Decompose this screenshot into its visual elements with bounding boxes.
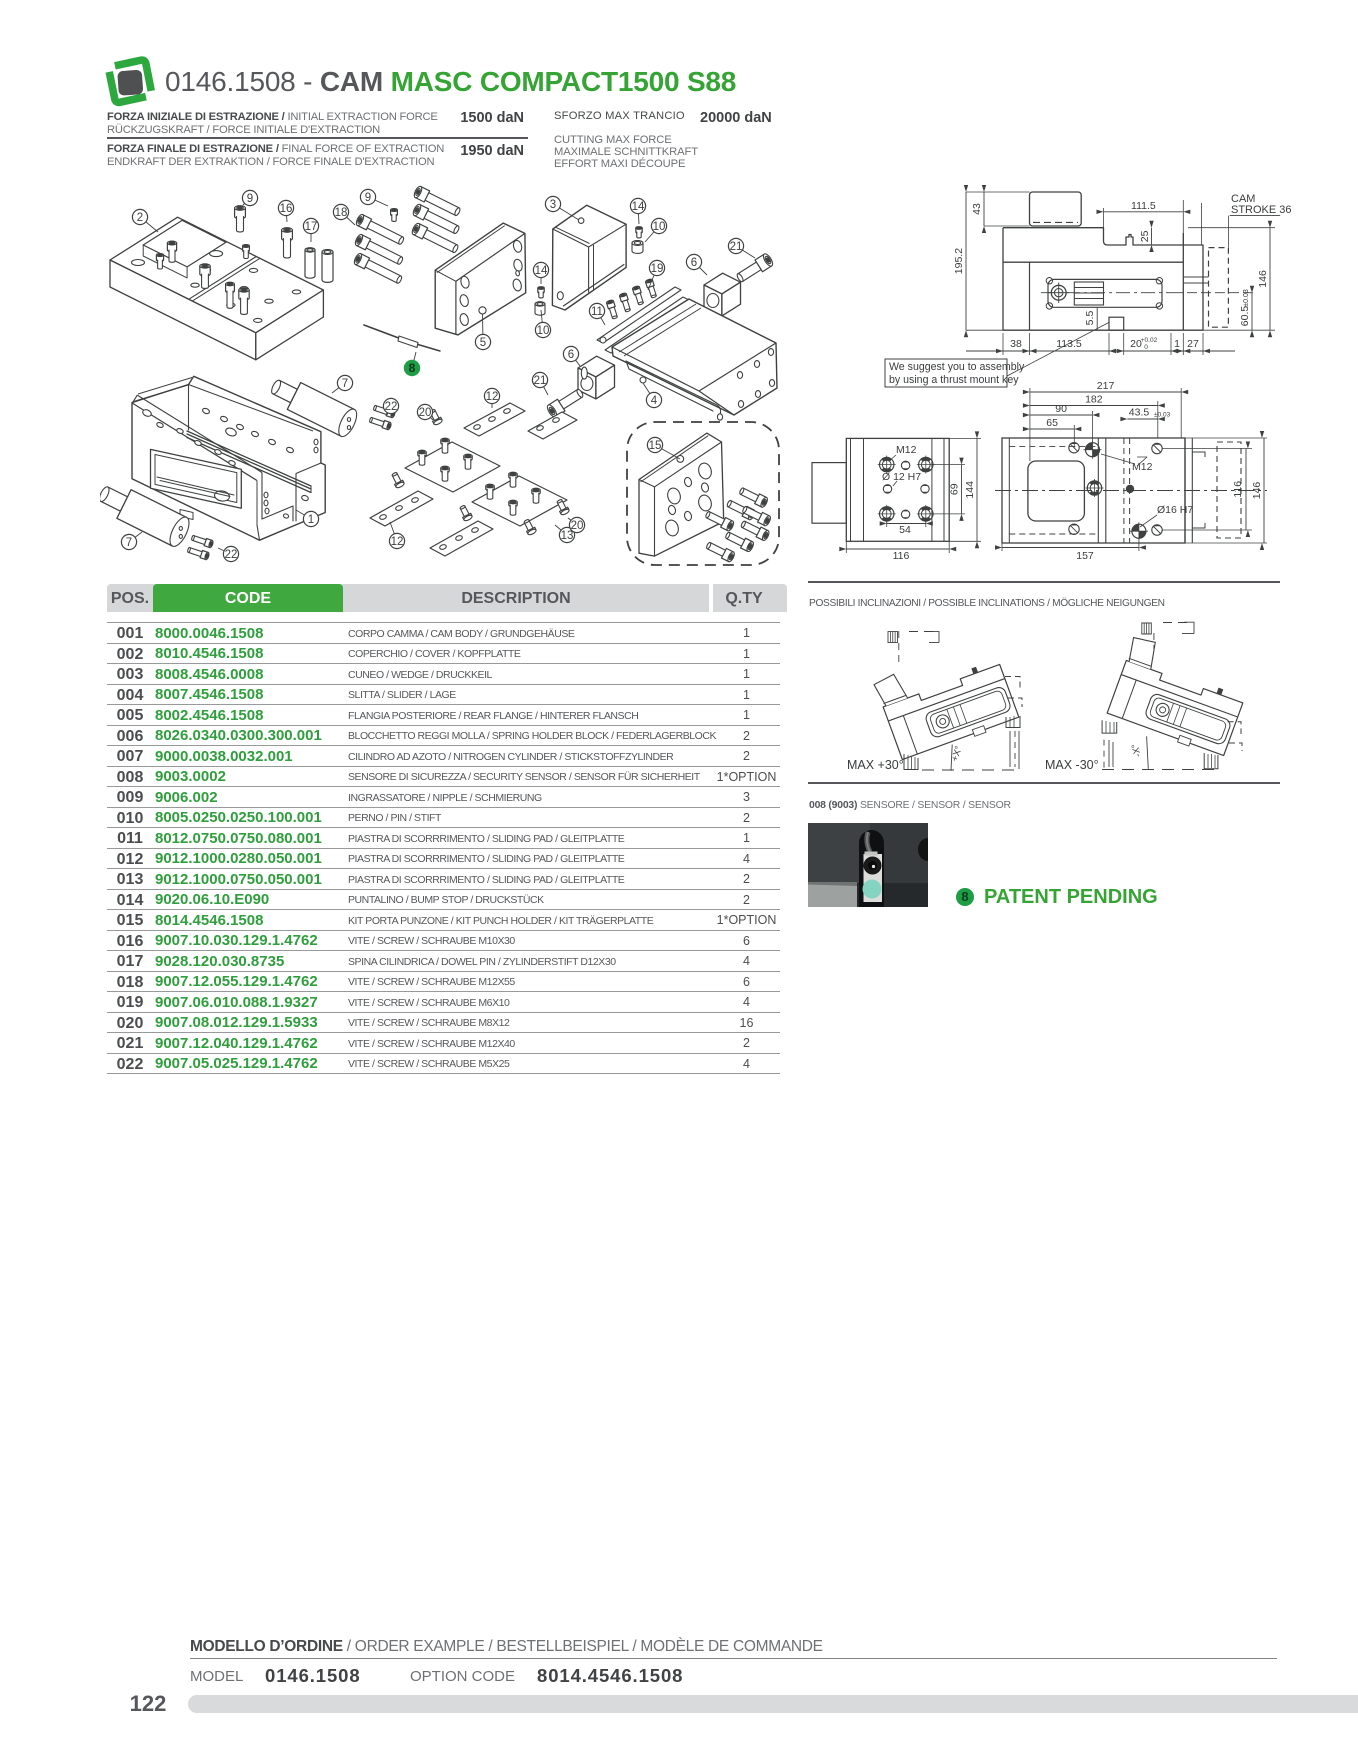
- svg-text:8: 8: [409, 361, 416, 375]
- svg-text:111.5: 111.5: [1131, 200, 1156, 212]
- svg-text:20: 20: [419, 407, 432, 419]
- svg-text:65: 65: [1046, 417, 1058, 429]
- svg-text:38: 38: [1010, 338, 1022, 350]
- svg-text:3: 3: [550, 199, 556, 211]
- svg-text:27: 27: [1187, 338, 1199, 350]
- svg-text:43.5: 43.5: [1129, 407, 1150, 419]
- svg-text:157: 157: [1076, 550, 1094, 562]
- svg-text:182: 182: [1085, 394, 1103, 406]
- svg-text:43: 43: [971, 203, 983, 215]
- svg-text:1: 1: [308, 514, 314, 526]
- svg-text:22: 22: [225, 549, 238, 561]
- svg-text:7: 7: [342, 378, 348, 390]
- svg-text:90: 90: [1055, 403, 1067, 415]
- svg-text:9: 9: [247, 193, 253, 205]
- svg-text:6: 6: [691, 257, 697, 269]
- svg-text:11: 11: [591, 306, 603, 318]
- svg-text:5.5: 5.5: [1084, 311, 1096, 326]
- svg-text:21: 21: [534, 375, 547, 387]
- svg-text:18: 18: [335, 207, 348, 219]
- svg-text:19: 19: [651, 263, 664, 275]
- svg-text:146: 146: [1251, 482, 1263, 500]
- svg-text:7: 7: [126, 537, 132, 549]
- svg-text:116: 116: [1232, 481, 1244, 498]
- svg-text:217: 217: [1097, 380, 1115, 392]
- svg-text:MAX +30°: MAX +30°: [847, 758, 904, 772]
- svg-text:6: 6: [568, 349, 574, 361]
- svg-text:-X°: -X°: [1130, 742, 1144, 758]
- svg-text:Ø 12 H7: Ø 12 H7: [882, 471, 921, 483]
- svg-text:54: 54: [899, 524, 911, 536]
- svg-text:14: 14: [632, 201, 645, 213]
- svg-text:60.5: 60.5: [1239, 306, 1251, 327]
- svg-text:2: 2: [137, 212, 143, 224]
- svg-text:M12: M12: [896, 444, 917, 456]
- svg-text:12: 12: [486, 391, 499, 403]
- svg-text:21: 21: [730, 241, 743, 253]
- svg-text:195.2: 195.2: [953, 248, 965, 274]
- svg-text:12: 12: [391, 536, 404, 548]
- svg-text:±0.03: ±0.03: [1243, 289, 1250, 307]
- svg-text:25: 25: [1139, 230, 1151, 242]
- svg-text:20: 20: [571, 520, 584, 532]
- svg-text:5: 5: [480, 337, 486, 349]
- svg-text:M12: M12: [1132, 461, 1153, 473]
- svg-text:MAX -30°: MAX -30°: [1045, 758, 1099, 772]
- svg-text:22: 22: [385, 401, 398, 413]
- svg-text:144: 144: [964, 481, 976, 499]
- svg-text:16: 16: [280, 203, 293, 215]
- svg-text:4: 4: [651, 395, 658, 407]
- svg-text:by using a thrust mount key: by using a thrust mount key: [889, 374, 1019, 386]
- svg-text:10: 10: [537, 325, 550, 337]
- svg-text:113.5: 113.5: [1056, 338, 1082, 350]
- svg-text:69: 69: [949, 483, 961, 495]
- svg-text:STROKE 36: STROKE 36: [1231, 204, 1292, 216]
- svg-text:146: 146: [1257, 270, 1269, 288]
- svg-text:10: 10: [653, 221, 666, 233]
- svg-text:9: 9: [365, 192, 371, 204]
- svg-text:15: 15: [649, 440, 662, 452]
- svg-text:17: 17: [305, 221, 318, 233]
- svg-text:±0.03: ±0.03: [1154, 412, 1171, 419]
- svg-text:0: 0: [1144, 344, 1148, 351]
- svg-text:116: 116: [893, 550, 910, 562]
- svg-text:1: 1: [1174, 338, 1180, 350]
- svg-text:We suggest you to assembly: We suggest you to assembly: [889, 361, 1025, 373]
- svg-text:+0.02: +0.02: [1141, 337, 1158, 344]
- svg-text:14: 14: [535, 265, 548, 277]
- svg-text:Ø16 H7: Ø16 H7: [1157, 504, 1193, 516]
